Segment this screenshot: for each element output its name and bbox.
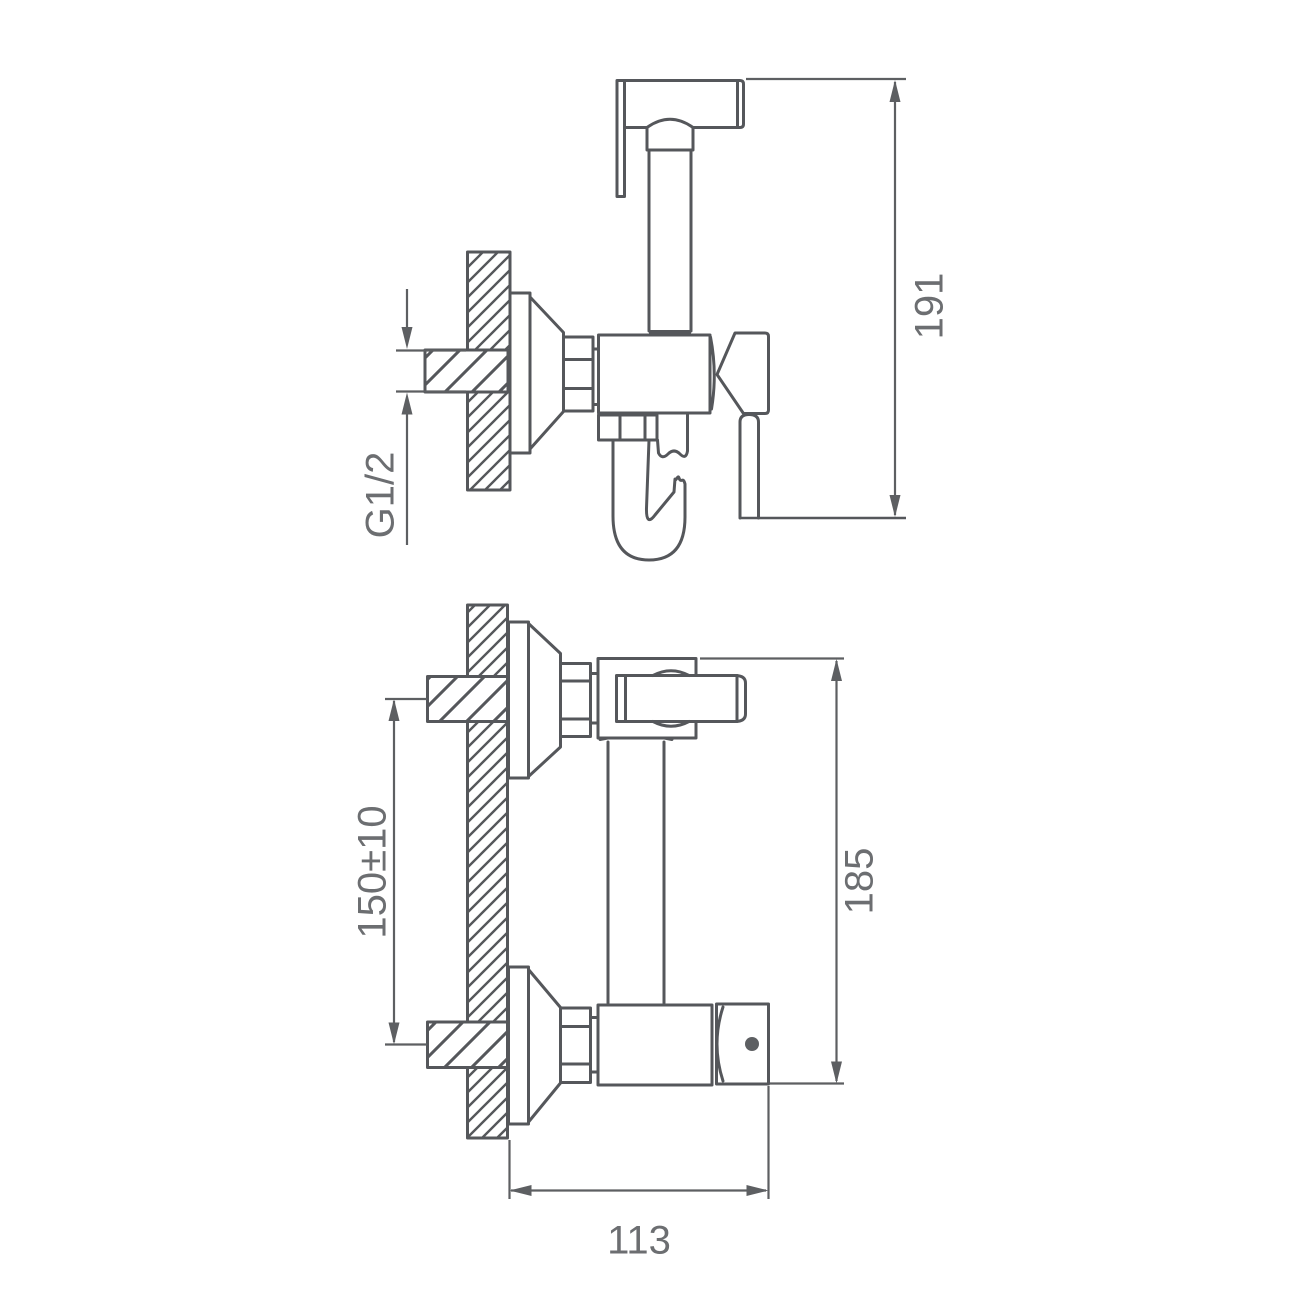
shower-hose — [599, 414, 688, 560]
side-view: 191 G1/2 — [359, 79, 952, 560]
dimension-overall-height: 191 — [740, 79, 952, 518]
hose-nut — [599, 415, 658, 440]
dimension-label-191: 191 — [908, 273, 952, 340]
wall-bracket-side — [740, 415, 759, 519]
sprayer-grip — [649, 150, 691, 331]
escutcheon-cone — [529, 970, 561, 1123]
arrow-up-icon — [389, 699, 400, 721]
arrow-up-icon — [402, 393, 413, 415]
dimension-label-113: 113 — [607, 1219, 671, 1263]
lower-escutcheon — [509, 967, 599, 1124]
arrow-down-icon — [389, 1023, 400, 1045]
riser-pipe — [600, 736, 672, 1010]
end-cap — [717, 1004, 769, 1084]
mixer-handle-side — [711, 333, 769, 414]
escutcheon-cone — [529, 624, 561, 777]
dimension-thread: G1/2 — [359, 289, 466, 545]
escutcheon-flange — [509, 967, 529, 1124]
supply-pipe-section-side — [425, 350, 508, 392]
arrow-up-icon — [831, 659, 842, 681]
lower-valve-body — [598, 1004, 769, 1085]
dimension-label-g12: G1/2 — [359, 452, 403, 539]
escutcheon-flange — [509, 622, 529, 778]
dimension-mount-spacing: 150±10 — [351, 699, 427, 1045]
upper-valve-body — [598, 659, 746, 739]
escutcheon-cone — [530, 297, 564, 449]
dimension-depth: 113 — [510, 1086, 769, 1263]
sprayer-head — [617, 81, 744, 334]
technical-drawing: 191 G1/2 — [0, 0, 1300, 1300]
dimension-label-150: 150±10 — [351, 805, 395, 938]
arrow-up-icon — [890, 80, 901, 102]
hose-loop — [613, 440, 685, 560]
front-view: 150±10 185 113 — [351, 605, 882, 1263]
sprayer-nozzle-face — [617, 81, 625, 197]
hex-nut-side — [564, 337, 599, 411]
drawing-canvas: 191 G1/2 — [0, 0, 1300, 1300]
upper-escutcheon — [509, 622, 599, 778]
arrow-down-icon — [402, 327, 413, 349]
hex-nut — [561, 664, 591, 737]
sprayer-neck — [647, 119, 693, 150]
mixer-lever — [617, 676, 746, 722]
escutcheon-flange — [510, 293, 530, 453]
arrow-down-icon — [890, 495, 901, 517]
valve-body-side — [599, 335, 711, 413]
set-screw-dot — [745, 1037, 759, 1051]
upper-supply-pipe — [428, 677, 508, 722]
arrow-down-icon — [831, 1062, 842, 1084]
dimension-label-185: 185 — [838, 848, 882, 915]
arrow-right-icon — [747, 1185, 769, 1196]
hose-upper-break — [658, 414, 688, 457]
hex-nut — [561, 1008, 591, 1083]
lower-supply-pipe — [428, 1022, 508, 1068]
escutcheon-side — [510, 293, 564, 453]
arrow-left-icon — [510, 1185, 532, 1196]
